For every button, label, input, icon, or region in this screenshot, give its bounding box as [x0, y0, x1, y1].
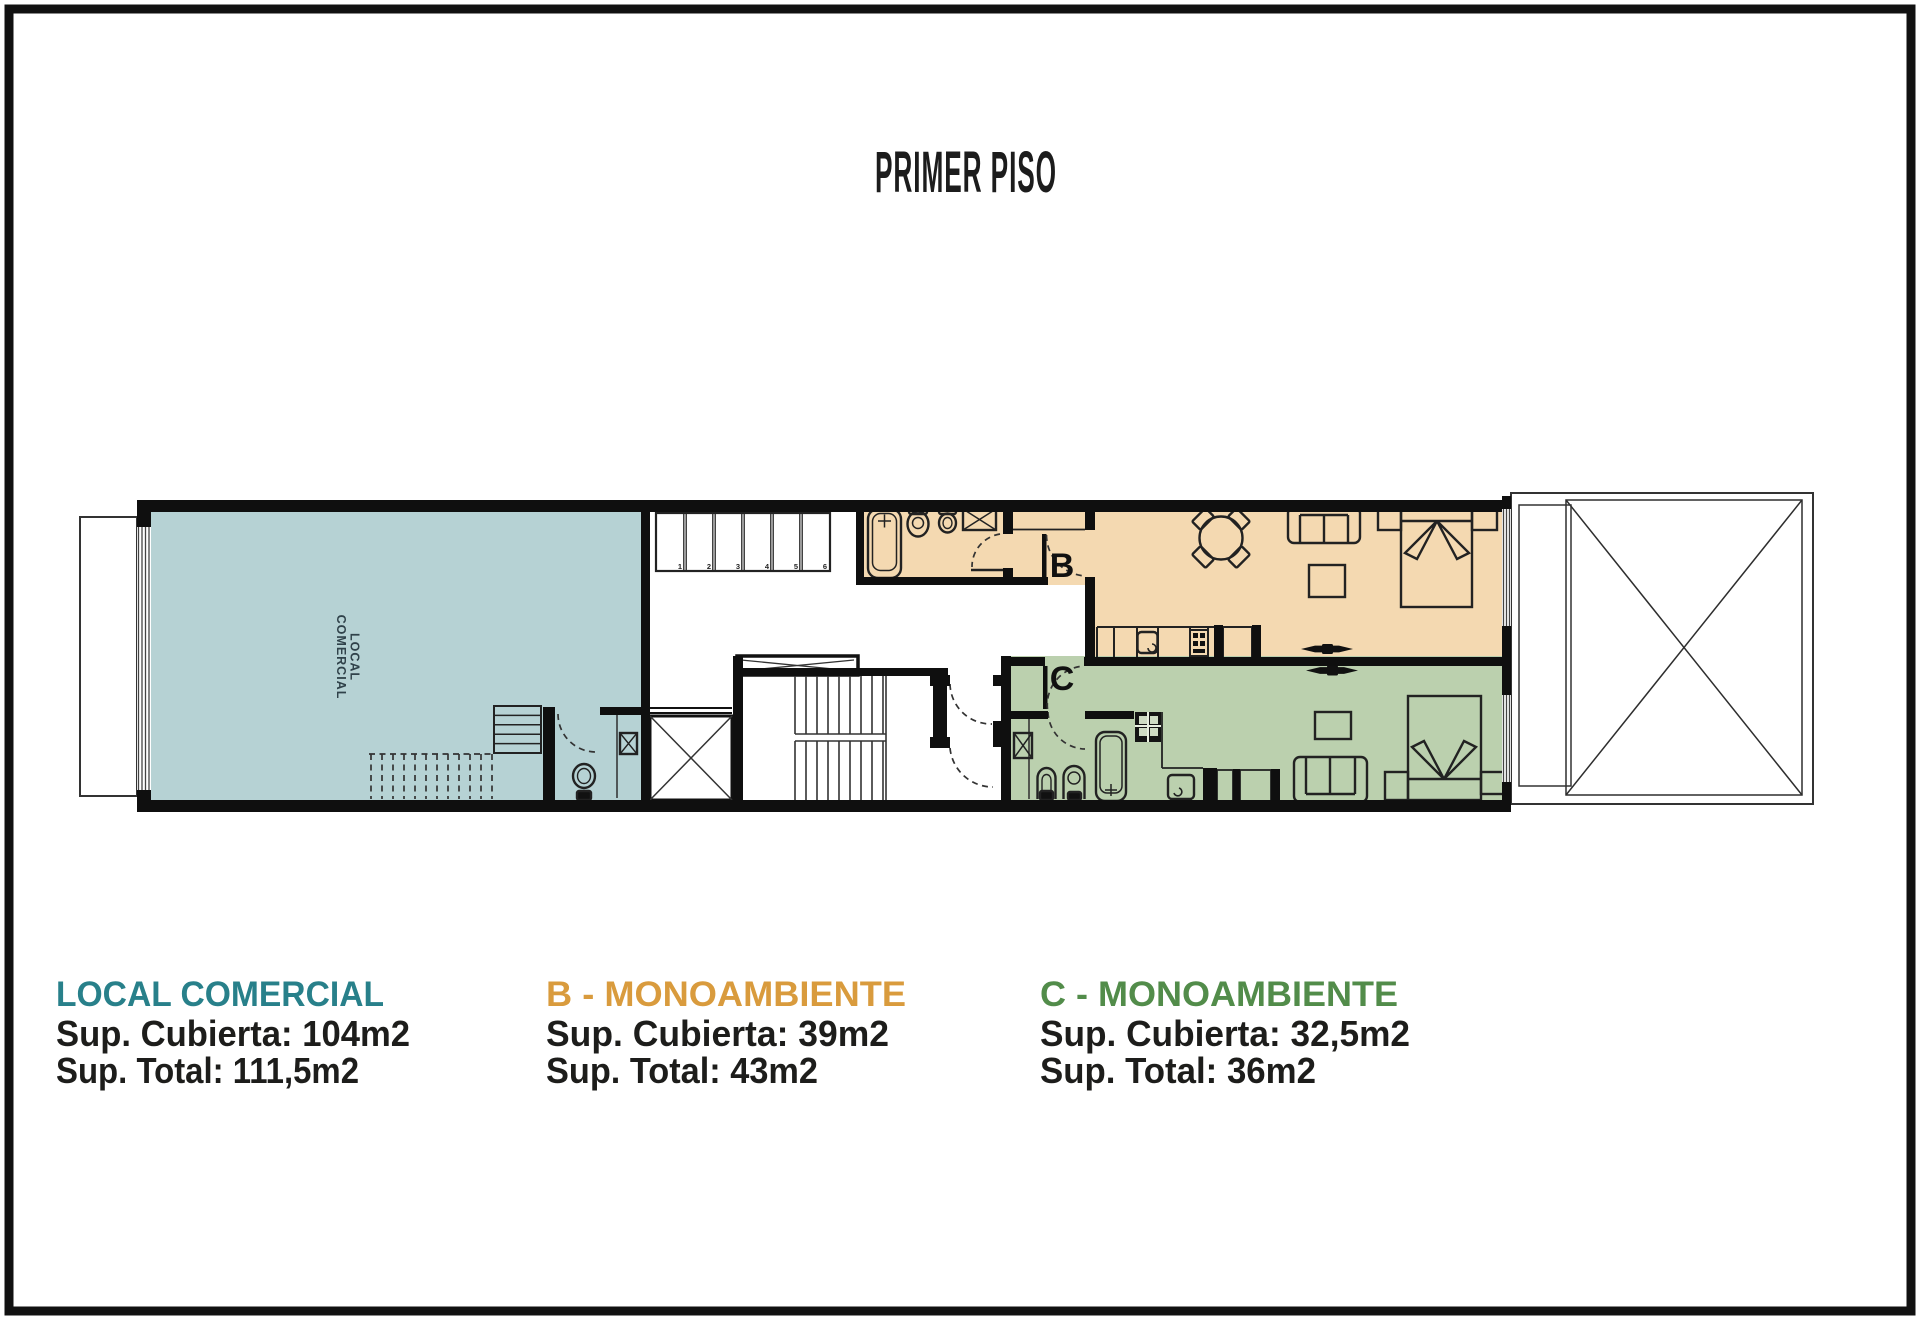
- svg-text:B: B: [1050, 547, 1075, 585]
- svg-text:C: C: [1050, 660, 1075, 698]
- svg-text:Sup. Cubierta: 39m2: Sup. Cubierta: 39m2: [546, 1013, 889, 1054]
- svg-text:5: 5: [794, 562, 798, 571]
- svg-text:6: 6: [823, 562, 827, 571]
- svg-text:3: 3: [736, 562, 740, 571]
- svg-text:B - MONOAMBIENTE: B - MONOAMBIENTE: [546, 975, 906, 1014]
- svg-text:Sup. Total: 36m2: Sup. Total: 36m2: [1040, 1050, 1316, 1091]
- svg-text:1: 1: [678, 562, 682, 571]
- svg-text:2: 2: [707, 562, 711, 571]
- svg-text:PRIMER PISO: PRIMER PISO: [875, 140, 1057, 205]
- svg-text:LOCAL COMERCIAL: LOCAL COMERCIAL: [56, 975, 384, 1014]
- svg-text:Sup. Cubierta: 104m2: Sup. Cubierta: 104m2: [56, 1013, 410, 1054]
- svg-text:C - MONOAMBIENTE: C - MONOAMBIENTE: [1040, 975, 1398, 1014]
- svg-text:Sup. Total: 111,5m2: Sup. Total: 111,5m2: [56, 1050, 359, 1091]
- svg-text:Sup. Cubierta: 32,5m2: Sup. Cubierta: 32,5m2: [1040, 1013, 1410, 1054]
- svg-text:Sup. Total: 43m2: Sup. Total: 43m2: [546, 1050, 818, 1091]
